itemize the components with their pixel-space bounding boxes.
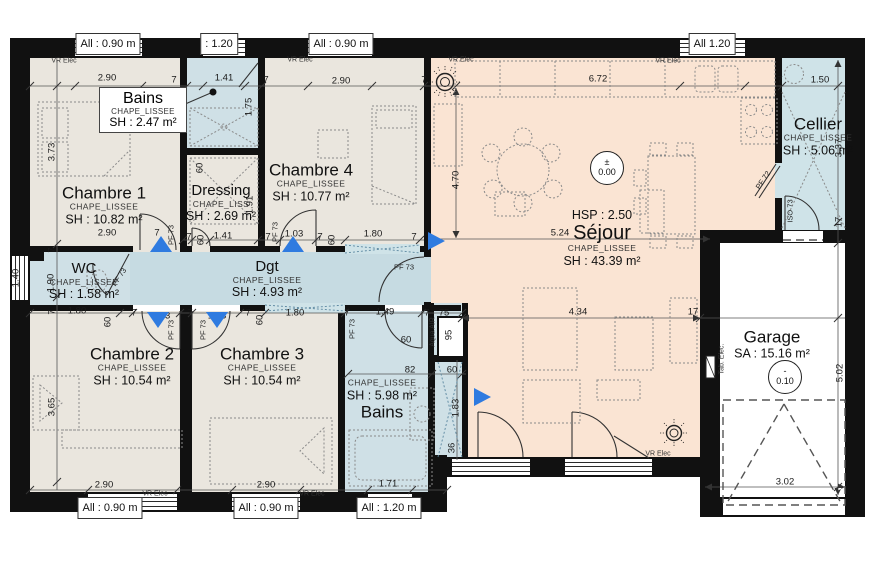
dim: 7 <box>317 232 322 243</box>
dim: 3.73 <box>47 143 58 162</box>
room-finish: CHAPE_LISSEE <box>49 278 119 288</box>
vr-elec-label: VR Elec <box>299 491 324 498</box>
window-label-text: All : 0.90 m <box>82 502 137 514</box>
window-label-c1: All : 0.90 m <box>75 33 140 55</box>
wall-c3-bains <box>338 311 345 492</box>
dim: 7 <box>411 232 416 243</box>
room-finish: CHAPE_LISSEE <box>563 244 640 254</box>
dim: 7 <box>186 232 191 243</box>
dim: 1.40 <box>11 269 22 288</box>
room-area: SH : 10.77 m² <box>269 189 353 203</box>
room-area: SH : 5.98 m² <box>347 388 417 402</box>
wall-bains-right <box>428 362 435 492</box>
room-name: Chambre 4 <box>269 161 353 180</box>
level-value: 0.10 <box>776 377 794 387</box>
direction-arrow-right <box>474 388 491 406</box>
dim: 60 <box>401 335 412 346</box>
glazed-band-bottom <box>265 303 345 313</box>
dim: 2.90 <box>332 76 351 87</box>
room-finish: CHAPE_LISSEE <box>220 364 304 374</box>
dim: 7 <box>263 75 268 86</box>
dim: 7 <box>245 308 250 319</box>
room-name: Chambre 1 <box>62 184 146 203</box>
dim: 60 <box>255 315 266 326</box>
vr-elec-label: VR Elec <box>287 57 312 64</box>
wall-corridor-end-a <box>424 252 431 257</box>
level-marker-sejour: ± 0.00 <box>590 151 624 185</box>
dim: 7 <box>47 247 58 252</box>
dim: 1.75 <box>244 98 255 117</box>
room-label-dgt: Dgt CHAPE_LISSEE SH : 4.93 m² <box>232 259 302 299</box>
room-area: SH : 4.93 m² <box>232 285 302 299</box>
window-label-text: All : 0.90 m <box>238 502 293 514</box>
room-name: Bains <box>104 90 182 108</box>
room-area: SH : 10.82 m² <box>62 212 146 226</box>
dim: 7 <box>171 75 176 86</box>
vr-elec-label: VR Elec <box>655 58 680 65</box>
vr-elec-label: VR Elec <box>448 57 473 64</box>
room-label-garage: Garage SA : 15.16 m² <box>734 327 810 360</box>
door-tag-pf73: PF 73 <box>348 319 357 339</box>
room-finish: CHAPE_LISSEE <box>347 379 417 389</box>
room-label-bains-top: Bains CHAPE_LISSEE SH : 2.47 m² <box>99 87 187 133</box>
dim: 7 <box>777 75 782 86</box>
room-finish: CHAPE_LISSEE <box>269 180 353 190</box>
direction-arrow-up <box>282 236 304 252</box>
dim: 17 <box>834 217 845 228</box>
wall-corridor-top-1 <box>30 246 133 252</box>
dim: 7 <box>344 308 349 319</box>
vr-elec-label: VR Elec <box>142 491 167 498</box>
wall-sejour-cellier-b <box>775 198 782 230</box>
dim: 3.65 <box>47 398 58 417</box>
dim: 60 <box>447 365 458 376</box>
room-area: SH : 5.06 m² <box>783 143 853 157</box>
glazed-band-top <box>345 244 420 254</box>
tab-elec-label: Tab. Elec. <box>719 344 726 375</box>
room-name: WC <box>49 261 119 278</box>
room-finish: CHAPE_LISSEE <box>90 364 174 374</box>
room-finish: CHAPE_LISSEE <box>232 276 302 286</box>
wall-corridor-top-4 <box>316 246 345 252</box>
dim: 2.90 <box>95 480 114 491</box>
room-name: Cellier <box>783 115 853 134</box>
door-tag-pf73: PF 73 <box>394 263 414 272</box>
room-hsp: HSP : 2.50 <box>563 208 640 222</box>
dim: 4.34 <box>569 307 588 318</box>
room-chambre3-floor <box>192 311 338 492</box>
room-label-cellier: Cellier CHAPE_LISSEE SH : 5.06 m² <box>783 115 853 158</box>
room-name: Séjour <box>563 222 640 244</box>
dim: 1.71 <box>379 479 398 490</box>
window-label-text: : 1.20 <box>205 38 233 50</box>
dim: 60 <box>327 235 338 246</box>
direction-arrow-down <box>206 312 228 328</box>
dim: 60 <box>195 163 206 174</box>
dim: 75 <box>439 308 450 319</box>
door-tag-iso73: ISO 73 <box>786 199 795 222</box>
room-area: SH : 2.69 m² <box>186 209 256 223</box>
room-finish: CHAPE_LISSEE <box>783 134 853 144</box>
room-area: SH : 10.54 m² <box>90 373 174 387</box>
wall-corridor-bottom-3 <box>240 305 265 311</box>
wall-bains-dressing <box>187 148 258 155</box>
dim: 60 <box>103 317 114 328</box>
dim: 17 <box>688 307 699 318</box>
floor-plan: All : 0.90 m : 1.20 All : 0.90 m All 1.2… <box>0 0 884 570</box>
room-area: SH : 10.54 m² <box>220 373 304 387</box>
dim: 2.90 <box>257 480 276 491</box>
window-label-text: All : 0.90 m <box>313 38 368 50</box>
wall-corridor-top-2 <box>180 246 192 252</box>
direction-arrow-down <box>147 312 169 328</box>
wall-corridor-top-3 <box>210 246 280 252</box>
level-value: 0.00 <box>598 168 616 178</box>
room-area: SH : 43.39 m² <box>563 254 640 268</box>
direction-arrow-up <box>150 236 172 252</box>
dim: 1.41 <box>214 231 233 242</box>
dim: 1.80 <box>364 229 383 240</box>
room-label-bains-bottom: CHAPE_LISSEE SH : 5.98 m² Bains <box>347 379 417 422</box>
dim: 5.02 <box>835 364 846 383</box>
room-label-dressing: Dressing CHAPE_LISS SH : 2.69 m² <box>186 183 256 223</box>
door-tag-pf73: PF 73 <box>271 222 280 242</box>
room-area: SA : 15.16 m² <box>734 347 810 361</box>
dim: 82 <box>405 365 416 376</box>
room-name: Chambre 2 <box>90 345 174 364</box>
room-label-chambre2: Chambre 2 CHAPE_LISSEE SH : 10.54 m² <box>90 345 174 388</box>
room-finish: CHAPE_LISSEE <box>62 203 146 213</box>
room-label-chambre4: Chambre 4 CHAPE_LISSEE SH : 10.77 m² <box>269 161 353 204</box>
dim: 7 <box>187 308 192 319</box>
room-finish: CHAPE_LISS <box>186 200 256 210</box>
room-label-chambre3: Chambre 3 CHAPE_LISSEE SH : 10.54 m² <box>220 345 304 388</box>
entry-bay-2 <box>565 459 652 475</box>
window-label-c2: All : 0.90 m <box>77 497 142 519</box>
dim: 1.80 <box>286 308 305 319</box>
room-name: Bains <box>347 402 417 421</box>
dim: 36 <box>447 443 458 454</box>
aqua-air-label: Aqua AIR <box>430 317 437 347</box>
wall-right <box>845 38 865 517</box>
room-sejour-floor-lower <box>431 252 700 457</box>
window-label-text: All : 1.20 m <box>361 502 416 514</box>
dim: 1.41 <box>215 73 234 84</box>
dim: 2.90 <box>98 228 117 239</box>
garage-door-opening <box>723 499 845 515</box>
dim: 7 <box>131 308 136 319</box>
wall-dressing-c4 <box>258 58 265 252</box>
room-name: Chambre 3 <box>220 345 304 364</box>
window-label-bains-top: : 1.20 <box>200 33 238 55</box>
dim: 1.49 <box>376 307 395 318</box>
window-label-c3: All : 0.90 m <box>233 497 298 519</box>
dim: 4.70 <box>451 171 462 190</box>
room-label-sejour: HSP : 2.50 Séjour CHAPE_LISSEE SH : 43.3… <box>563 208 640 268</box>
room-label-wc: WC CHAPE_LISSEE SH : 1.58 m² <box>49 261 119 301</box>
dim: 2.90 <box>98 73 117 84</box>
dim: 7 <box>47 309 58 314</box>
direction-arrow-right <box>428 232 445 250</box>
window-label-text: All : 0.90 m <box>80 38 135 50</box>
window-label-bains-bottom: All : 1.20 m <box>356 497 421 519</box>
dim: 7 <box>421 75 426 86</box>
room-name: Dressing <box>186 183 256 200</box>
door-gap-pf72 <box>775 163 782 198</box>
room-area: SH : 2.47 m² <box>104 116 182 129</box>
dim: 1.80 <box>68 306 87 317</box>
entry-bay-1 <box>452 459 530 475</box>
wall-garage-left <box>700 230 720 517</box>
level-marker-garage: - 0.10 <box>768 360 802 394</box>
door-gap-iso73 <box>783 231 823 242</box>
window-label-cuisine: All 1.20 <box>689 33 736 55</box>
window-label-text: All 1.20 <box>694 38 731 50</box>
dim: 60 <box>196 235 207 246</box>
room-label-chambre1: Chambre 1 CHAPE_LISSEE SH : 10.82 m² <box>62 184 146 227</box>
dim: 3.02 <box>776 477 795 488</box>
vr-elec-label: VR Elec <box>645 451 670 458</box>
wall-wc-stub <box>30 252 44 261</box>
dim: 1.83 <box>451 399 462 418</box>
wall-c4-sejour <box>424 58 431 252</box>
vr-elec-label: VR Elec <box>51 58 76 65</box>
wall-c2-c3 <box>180 311 192 492</box>
dim: 6.72 <box>589 74 608 85</box>
room-name: Dgt <box>232 259 302 276</box>
room-chambre4-floor <box>265 58 424 252</box>
room-area: SH : 1.58 m² <box>49 287 119 301</box>
window-label-c4: All : 0.90 m <box>308 33 373 55</box>
room-name: Garage <box>734 327 810 346</box>
dim: 95 <box>444 330 455 341</box>
dim: 1.50 <box>811 75 830 86</box>
